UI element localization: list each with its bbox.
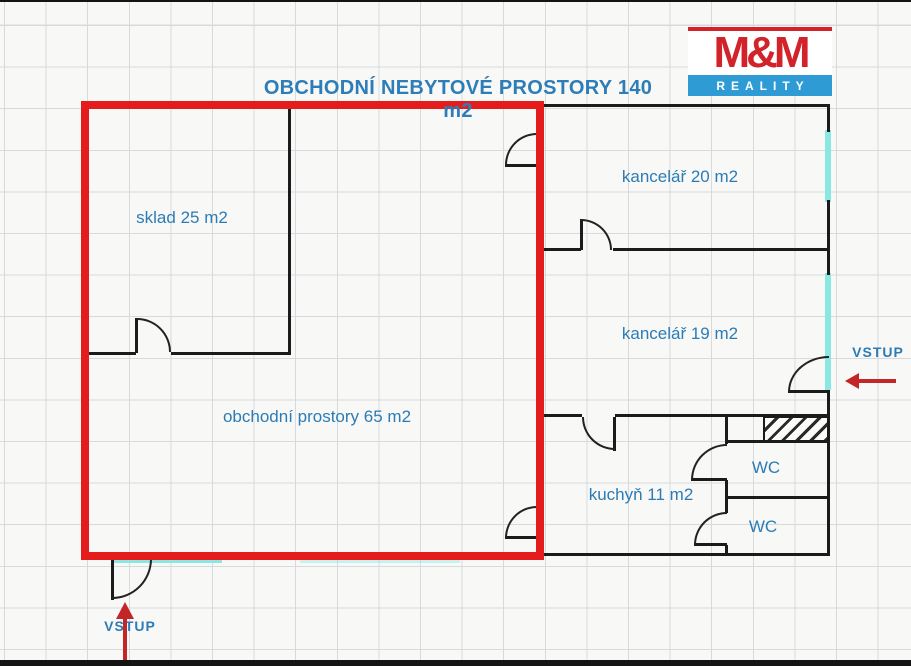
page-title: OBCHODNÍ NEBYTOVÉ PROSTORY 140 m2 — [258, 77, 658, 123]
logo-reality-block: REALITY — [688, 75, 832, 96]
room-label-kancelar-19: kancelář 19 m2 — [580, 324, 780, 344]
vstup-arrow-bottom-head — [116, 602, 134, 619]
right-entrance-door-arc — [788, 356, 829, 392]
highlight-rectangle — [81, 101, 544, 560]
floor-plan: OBCHODNÍ NEBYTOVÉ PROSTORY 140 m2 M&M RE… — [0, 0, 911, 666]
room-label-wc-1: WC — [726, 458, 806, 478]
wall-outer-right-b — [827, 200, 830, 275]
room-label-sklad: sklad 25 m2 — [82, 208, 282, 228]
top-edge-bar — [0, 0, 911, 2]
logo-mm-block: M&M — [688, 27, 832, 75]
vstup-arrow-bottom-shaft — [123, 618, 127, 666]
mm-reality-logo: M&M REALITY — [688, 27, 832, 96]
vstup-label-right: VSTUP — [838, 344, 911, 360]
logo-reality-text: REALITY — [710, 79, 809, 93]
logo-mm-text: M&M — [713, 31, 806, 75]
kitchen-door-arc — [582, 417, 615, 450]
room-label-kancelar-20: kancelář 20 m2 — [580, 167, 780, 187]
office-divider-door-arc — [581, 219, 612, 250]
wall-outer-right-a — [827, 104, 830, 132]
vstup-arrow-right-shaft — [858, 379, 896, 383]
main-entrance-door-arc — [112, 559, 152, 599]
wall-wc-divider — [725, 496, 830, 499]
wall-wc-left-c — [725, 545, 728, 556]
wc1-door-arc — [691, 444, 727, 480]
wall-office-divider-b — [613, 248, 830, 251]
vstup-arrow-right-head — [845, 373, 859, 389]
room-label-kuchyn: kuchyň 11 m2 — [556, 485, 726, 505]
room-label-obchodni-prostory: obchodní prostory 65 m2 — [167, 407, 467, 427]
room-label-wc-2: WC — [723, 517, 803, 537]
vstup-label-bottom: VSTUP — [90, 618, 170, 634]
hatched-shaft — [763, 416, 829, 442]
bottom-edge-bar — [0, 660, 911, 666]
window-marker-right-top — [825, 130, 831, 202]
